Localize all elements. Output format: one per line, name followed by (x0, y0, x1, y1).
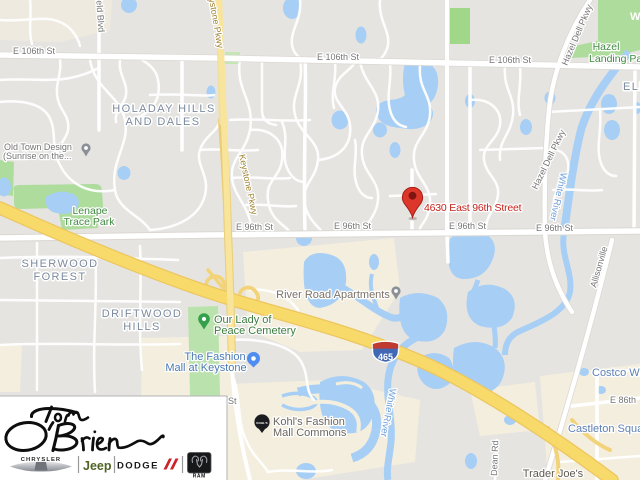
svg-text:Jeep: Jeep (83, 459, 112, 473)
svg-text:Castleton Square: Castleton Square (568, 423, 640, 435)
svg-text:E 106th St: E 106th St (317, 52, 360, 62)
svg-text:FOREST: FOREST (33, 271, 86, 283)
svg-text:ELLER: ELLER (623, 81, 640, 93)
svg-text:HOLADAY HILLS: HOLADAY HILLS (112, 103, 215, 115)
svg-text:E 96th St: E 96th St (236, 222, 274, 232)
svg-text:KOHL'S: KOHL'S (256, 421, 267, 425)
svg-text:Trader Joe's: Trader Joe's (523, 468, 584, 480)
svg-text:E 86th: E 86th (610, 395, 636, 405)
svg-text:SHERWOOD: SHERWOOD (21, 258, 98, 270)
svg-text:River Road Apartments: River Road Apartments (276, 289, 390, 301)
svg-text:Landing Park: Landing Park (589, 53, 640, 65)
svg-text:RAM: RAM (193, 474, 206, 480)
svg-text:4630 East 96th Street: 4630 East 96th Street (424, 202, 522, 214)
svg-text:E 106th St: E 106th St (489, 55, 532, 65)
svg-text:Trace Park: Trace Park (64, 216, 116, 228)
svg-text:E 106th St: E 106th St (13, 46, 56, 56)
svg-text:465: 465 (378, 352, 393, 362)
svg-text:Dean Rd: Dean Rd (489, 440, 500, 476)
svg-text:Hazel: Hazel (593, 41, 620, 53)
svg-text:Costco Whol: Costco Whol (592, 367, 640, 379)
svg-text:Mall Commons: Mall Commons (273, 427, 347, 439)
svg-text:HILLS: HILLS (123, 321, 161, 333)
svg-text:E 96th St: E 96th St (449, 221, 487, 231)
svg-text:E 96th St: E 96th St (334, 221, 372, 231)
svg-text:W: W (630, 11, 640, 23)
svg-text:DRIFTWOOD: DRIFTWOOD (102, 308, 182, 320)
svg-text:E 96th St: E 96th St (536, 223, 574, 233)
svg-text:Peace Cemetery: Peace Cemetery (214, 325, 296, 337)
svg-text:AND DALES: AND DALES (126, 116, 201, 128)
svg-text:St: St (228, 396, 237, 406)
svg-text:(Sunrise on the...: (Sunrise on the... (3, 151, 72, 161)
svg-text:Mall at Keystone: Mall at Keystone (165, 362, 246, 374)
svg-text:DODGE: DODGE (117, 461, 159, 472)
